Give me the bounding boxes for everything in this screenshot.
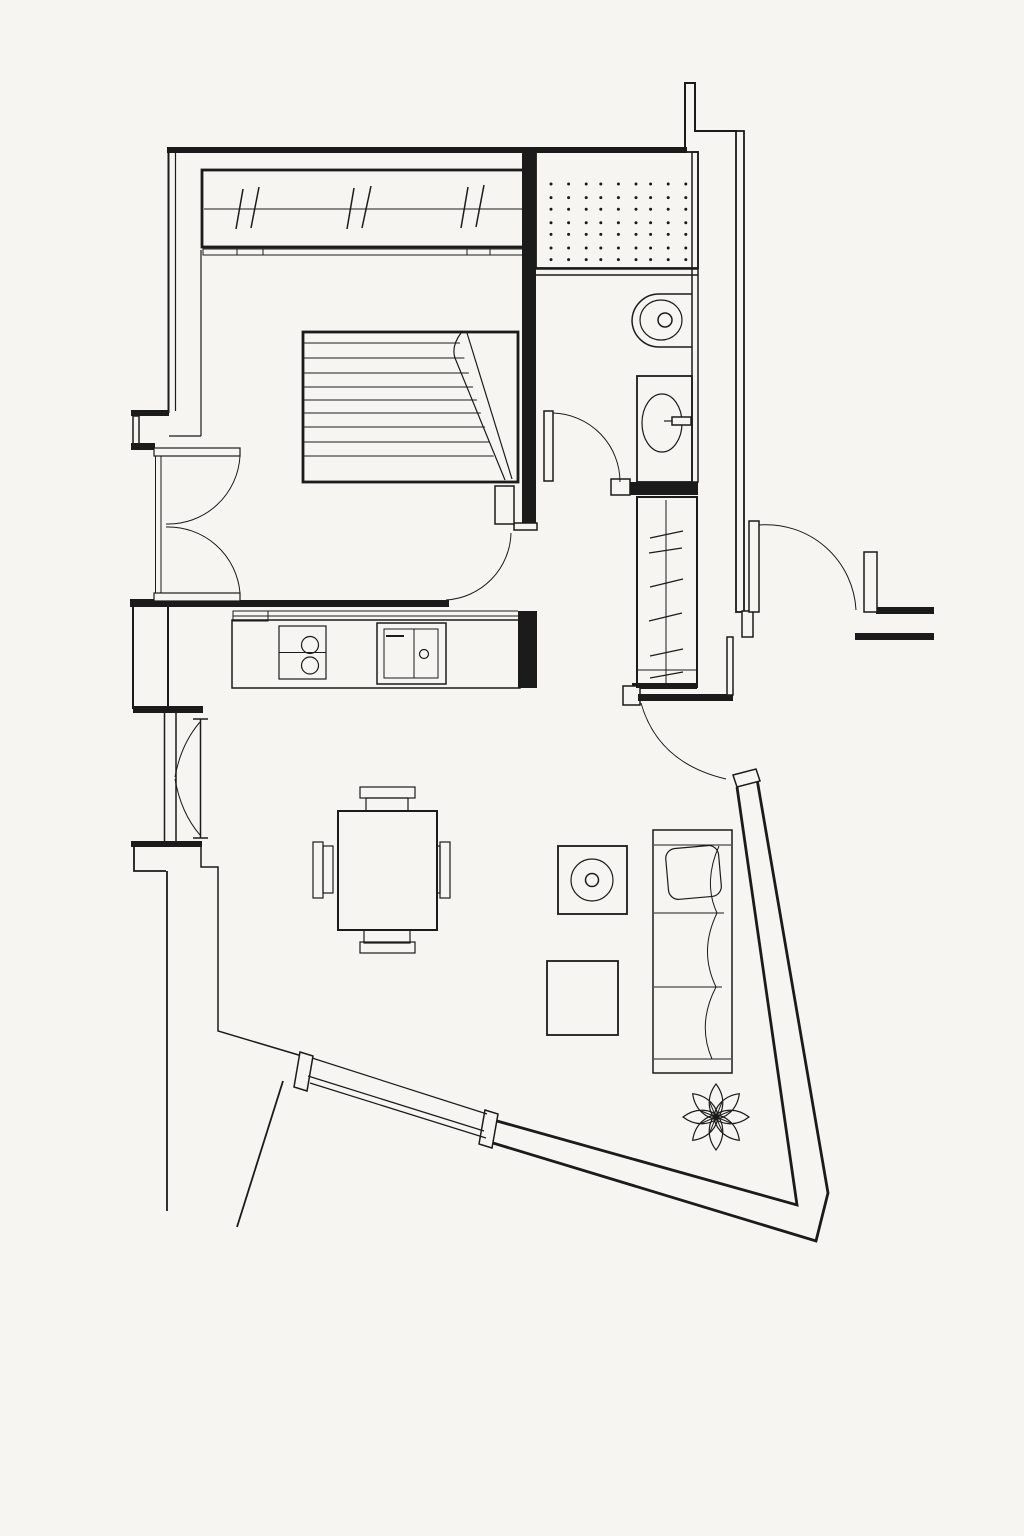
sofa [653,830,732,1073]
speaker-cone-icon [571,859,613,901]
shower-tile-dot [667,258,670,261]
door-leaf [749,521,759,612]
shower-tile-dot [684,221,687,224]
kitchen-sink-unit [377,623,446,684]
shower-tile-dot [599,258,602,261]
shower-tile-dot [567,196,570,199]
under-closet-wall [638,694,733,701]
shower-tile-dot [599,196,602,199]
wardrobe-track [203,249,523,255]
faucet-icon [672,417,691,425]
dining-table [338,811,437,930]
shower-tray [536,152,698,268]
hall-door-jamb [623,686,640,705]
chair-seat [366,798,408,812]
shower-tile-dot [550,233,553,236]
shower-tile-dot [649,196,652,199]
speaker-center-icon [586,874,599,887]
kitchen-pier [133,606,168,708]
chair-back [360,787,415,798]
shower-tile-dot [684,233,687,236]
door-leaf [544,411,553,481]
shower-tile-dot [667,233,670,236]
kitchen-counter [232,620,520,688]
bedroom [202,170,524,484]
entrance-right-jamb [864,552,877,612]
right-exterior-wall-lower [855,633,934,640]
window-glazing-line [310,1083,486,1138]
shower-tile-dot [599,208,602,211]
shower-tile-dot [599,233,602,236]
potted-plant [683,1084,749,1150]
media-box [558,846,627,914]
panorama-window [308,1058,487,1138]
shower-tile-dot [635,258,638,261]
shower-tile-dot [684,196,687,199]
kitchen [232,611,520,688]
shower-tile-dot [617,247,620,250]
living-dining [313,787,749,1150]
shower-tile-dot [567,183,570,186]
window-glazing-line [308,1076,484,1131]
shower-tile-dot [585,183,588,186]
floor-plan-sheet [0,0,1024,1536]
shower-tile-dot [667,196,670,199]
toilet-bowl [640,300,682,340]
right-exterior-wall-upper [876,607,934,614]
shower-dots [550,183,688,262]
left-wall-pier-upper [133,416,139,446]
shower-tile-dot [567,208,570,211]
shower-tile-dot [684,183,687,186]
window-swing-arc [175,779,200,835]
window-left-cap [294,1052,313,1091]
shower-tile-dot [617,196,620,199]
shower-tile-dot [550,208,553,211]
shower-tile-dot [550,258,553,261]
dining-set [313,787,450,953]
door-head-wall [131,443,155,450]
shower-tile-dot [599,247,602,250]
bathroom-east-wall [692,152,698,482]
stepped-block-outline [134,847,166,871]
floor-plan-drawing [0,0,1024,1536]
shower-tile-dot [550,183,553,186]
shower-tile-dot [684,208,687,211]
shower-tile-dot [649,208,652,211]
mattress-area [456,330,522,484]
door-leaf [495,486,514,524]
shower-tile-dot [684,258,687,261]
burner-icon [302,657,319,674]
shower-tile-dot [550,247,553,250]
shower-tile-dot [649,258,652,261]
plant-center [714,1115,719,1120]
chair-back [360,942,415,953]
exterior-walls [130,83,828,1241]
washbasin-cabinet [637,376,692,482]
angled-wall-end-cap [733,769,760,787]
shower-tile-dot [585,208,588,211]
shower-tile-dot [599,221,602,224]
shower-tile-dot [550,196,553,199]
shower-tile-dot [617,183,620,186]
shower-tile-dot [567,233,570,236]
shower-tile-dot [635,208,638,211]
shower-tile-dot [649,247,652,250]
hall-closet [637,497,697,687]
chair-back [440,842,450,898]
left-wall-jog [131,410,169,416]
shower-tile-dot [585,258,588,261]
shower-tile-dot [550,221,553,224]
media-unit [558,846,627,914]
chair-back [313,842,323,898]
door-swing-arc [446,533,511,600]
shower-tile-dot [649,183,652,186]
entrance-left-jamb [742,611,753,637]
shower-tile-dot [667,208,670,211]
shower-tile-dot [635,196,638,199]
door-swing-arc [553,413,620,482]
lower-left-wall-inner [201,847,302,1056]
shower-tile-dot [649,233,652,236]
shower-tile-dot [585,233,588,236]
chair-seat [323,846,333,893]
chimney-recess-wall [685,83,737,153]
door-swing-arc [641,703,726,779]
shower-tile-dot [684,247,687,250]
shower-tile-dot [635,221,638,224]
coffee-table [547,961,618,1035]
angled-wall-outer [493,779,828,1241]
shower-tile-dot [635,233,638,236]
door-leaf [154,593,240,601]
bathroom-south-wall [630,482,698,495]
toilet-outline [632,294,692,347]
chair-seat [364,930,410,943]
bedroom-double-swing-door [154,448,240,601]
hall-west-wall-stub [518,611,537,688]
shower-tile-dot [585,221,588,224]
sink-drain [420,650,429,659]
shower-tile-dot [635,183,638,186]
shower-tile-dot [585,196,588,199]
door-swing-arc [166,527,240,593]
window-swing-arc [175,722,200,777]
door-swing-arc [166,456,240,524]
closet-outline [637,497,697,687]
shower-tile-dot [567,221,570,224]
shower-tile-dot [599,183,602,186]
shower-tile-dot [617,221,620,224]
shower-tile-dot [667,247,670,250]
entrance-door [749,521,856,612]
shower-tile-dot [617,208,620,211]
shower-tile-dot [567,247,570,250]
bathroom-door-jamb [611,479,630,495]
partition-end-cap [514,523,537,530]
toilet-drain [658,313,672,327]
shower-tile-dot [617,233,620,236]
right-exterior-wall [736,131,744,612]
shower-tile-dot [667,221,670,224]
door-swing-arc [759,525,856,610]
bathroom [536,152,698,482]
angled-wall-inner [497,787,797,1205]
bedroom-door [446,486,514,600]
sofa-back-cushions [705,846,719,1059]
casement-window [165,713,209,841]
shower-tile-dot [635,247,638,250]
shower-tile-dot [617,258,620,261]
entry-west-wall [727,637,733,695]
terrace-boundary-line [237,1081,283,1227]
bed [303,330,522,484]
hall-living-door [641,703,726,779]
shower-tile-dot [667,183,670,186]
shower-tile-dot [649,221,652,224]
pier-bottom-band [133,706,203,713]
door-leaf [154,448,240,456]
sliding-door-marks [236,185,484,229]
block-top-band [131,841,202,847]
burner-icon [302,637,319,654]
shower-tile-dot [585,247,588,250]
sofa-pillow [665,845,722,900]
shower-tile-dot [567,258,570,261]
bathroom-door [544,411,620,482]
